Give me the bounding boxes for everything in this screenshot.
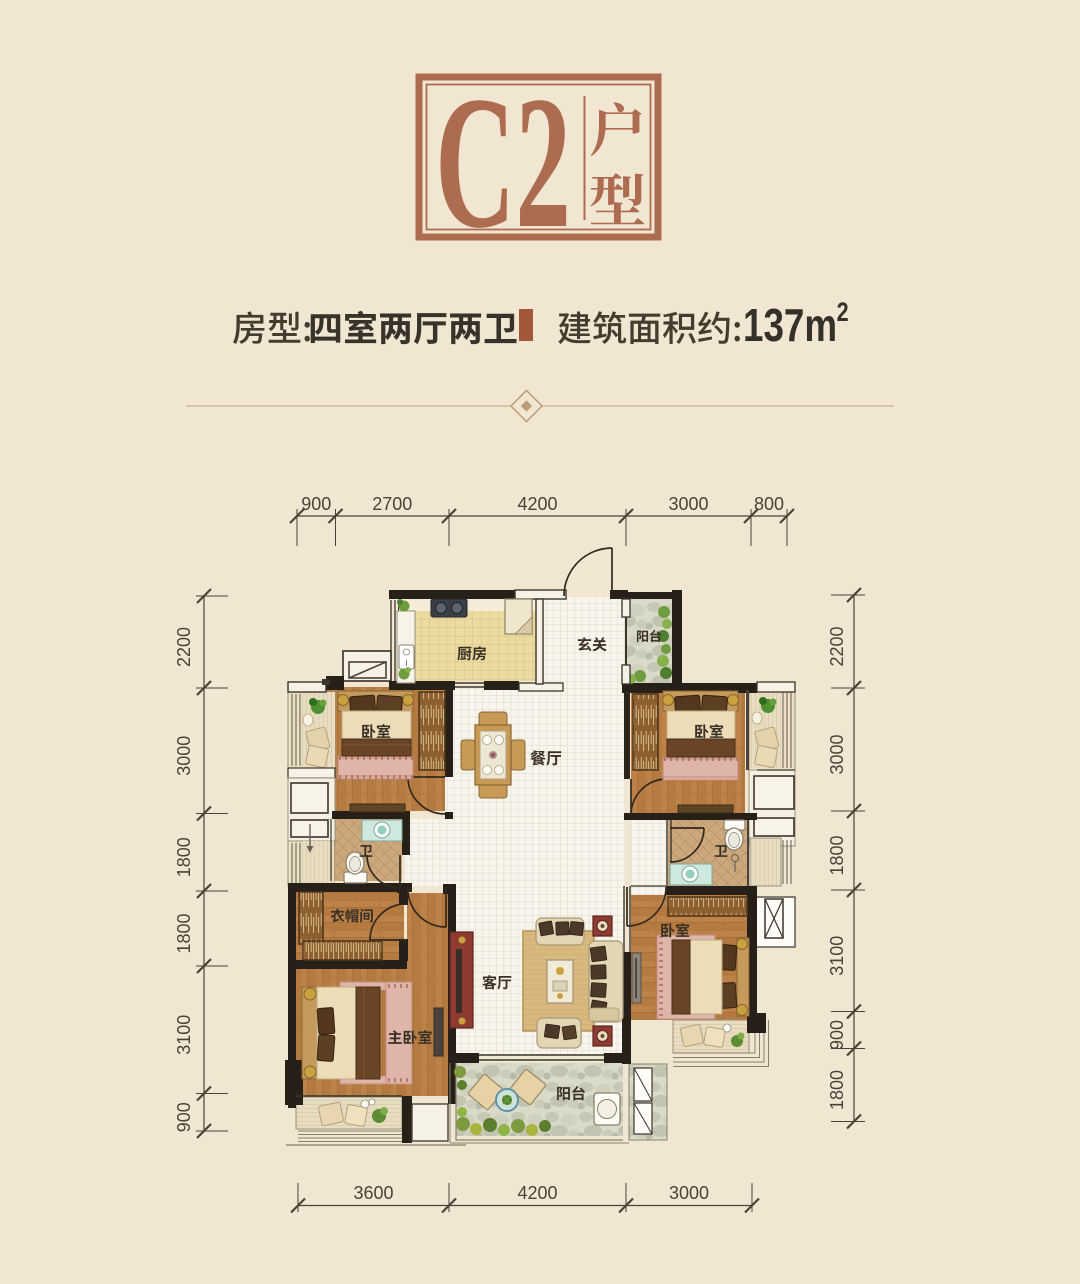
svg-text:3600: 3600 [353, 1183, 393, 1203]
svg-text:2200: 2200 [827, 626, 847, 666]
svg-text:2: 2 [837, 298, 849, 328]
svg-text:1800: 1800 [174, 837, 194, 877]
svg-text:900: 900 [174, 1102, 194, 1132]
svg-text:C2: C2 [435, 56, 571, 267]
svg-text:900: 900 [827, 1020, 847, 1050]
svg-text:3100: 3100 [174, 1015, 194, 1055]
svg-text:800: 800 [754, 494, 784, 514]
svg-text:3100: 3100 [827, 936, 847, 976]
svg-text:4200: 4200 [517, 494, 557, 514]
svg-text:3000: 3000 [668, 494, 708, 514]
svg-text:4200: 4200 [517, 1183, 557, 1203]
svg-text:2700: 2700 [372, 494, 412, 514]
svg-text:1800: 1800 [827, 835, 847, 875]
svg-text:1800: 1800 [827, 1070, 847, 1110]
svg-text:3000: 3000 [669, 1183, 709, 1203]
svg-text:3000: 3000 [174, 736, 194, 776]
svg-text:900: 900 [301, 494, 331, 514]
svg-text:2200: 2200 [174, 627, 194, 667]
svg-text:1800: 1800 [174, 913, 194, 953]
svg-text:3000: 3000 [827, 734, 847, 774]
svg-text:137m: 137m [743, 299, 837, 351]
